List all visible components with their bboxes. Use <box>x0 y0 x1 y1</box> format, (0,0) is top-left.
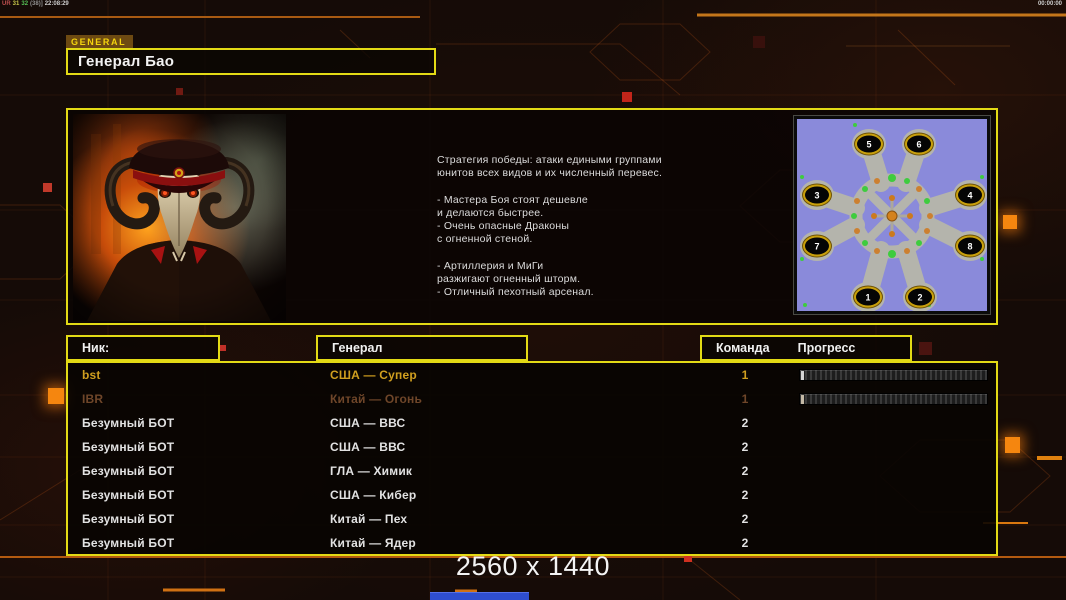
glow-square-decoration <box>1005 437 1020 453</box>
player-row: Безумный БОТ США — ВВС 2 <box>68 411 996 435</box>
general-name: Генерал Бао <box>78 53 174 70</box>
player-row: Безумный БОТ ГЛА — Химик 2 <box>68 459 996 483</box>
player-team: 2 <box>733 440 757 454</box>
minimap-preview: 1 2 3 4 5 6 7 8 <box>794 116 990 314</box>
general-column-header: Генерал <box>316 335 528 361</box>
player-nick: bst <box>82 368 101 382</box>
progress-tick <box>801 371 804 380</box>
minimap-position-1: 1 <box>854 287 882 308</box>
progress-header-label: Прогресс <box>798 341 856 355</box>
player-row: Безумный БОТ США — ВВС 2 <box>68 435 996 459</box>
general-title-box: Генерал Бао <box>66 48 436 75</box>
player-row: Безумный БОТ Китай — Пех 2 <box>68 507 996 531</box>
portrait-artwork <box>73 114 286 321</box>
player-team: 2 <box>733 512 757 526</box>
player-team: 2 <box>733 416 757 430</box>
glow-square-decoration <box>1003 215 1017 229</box>
player-nick: Безумный БОТ <box>82 512 174 526</box>
player-general: ГЛА — Химик <box>330 464 412 478</box>
progress-tick <box>801 395 804 404</box>
player-nick: IBR <box>82 392 103 406</box>
minimap-position-6: 6 <box>905 134 933 155</box>
player-nick: Безумный БОТ <box>82 536 174 550</box>
nick-column-header: Ник: <box>66 335 220 361</box>
glow-square-decoration <box>48 388 64 404</box>
resolution-label: 2560 x 1440 <box>0 551 1066 582</box>
stats-label: UR <box>2 1 11 7</box>
player-nick: Безумный БОТ <box>82 416 174 430</box>
player-general: Китай — Ядер <box>330 536 416 550</box>
player-row: bst США — Супер 1 <box>68 363 996 387</box>
player-team: 2 <box>733 536 757 550</box>
minimap-position-7: 7 <box>803 236 831 257</box>
loading-progress-bar <box>799 369 988 381</box>
loading-screen: UR3132(38)]22:08:29 00:00:00 GENERAL Ген… <box>0 0 1066 600</box>
player-team: 2 <box>733 488 757 502</box>
loading-progress-bar <box>799 393 988 405</box>
minimap-terrain <box>797 119 987 311</box>
general-bao-portrait <box>73 114 286 321</box>
player-nick: Безумный БОТ <box>82 440 174 454</box>
player-row: Безумный БОТ США — Кибер 2 <box>68 483 996 507</box>
player-general: США — Супер <box>330 368 417 382</box>
general-info-panel: Стратегия победы: атаки едиными группами… <box>66 108 998 325</box>
team-header-label: Команда <box>716 341 770 355</box>
bottom-blue-bar <box>430 592 529 600</box>
player-team: 2 <box>733 464 757 478</box>
player-general: США — ВВС <box>330 440 405 454</box>
player-general: США — Кибер <box>330 488 416 502</box>
player-team: 1 <box>733 368 757 382</box>
minimap-position-8: 8 <box>956 236 984 257</box>
player-table: bst США — Супер 1 IBR Китай — Огонь 1 Бе… <box>66 361 998 556</box>
player-team: 1 <box>733 392 757 406</box>
player-nick: Безумный БОТ <box>82 488 174 502</box>
minimap-position-2: 2 <box>906 287 934 308</box>
player-general: США — ВВС <box>330 416 405 430</box>
debug-stats-overlay: UR3132(38)]22:08:29 <box>2 1 71 8</box>
player-general: Китай — Огонь <box>330 392 422 406</box>
minimap-position-3: 3 <box>803 185 831 206</box>
game-timer: 00:00:00 <box>1038 1 1062 7</box>
team-progress-column-header: Команда Прогресс <box>700 335 912 361</box>
player-general: Китай — Пех <box>330 512 407 526</box>
strategy-description: Стратегия победы: атаки едиными группами… <box>437 154 767 299</box>
player-row: IBR Китай — Огонь 1 <box>68 387 996 411</box>
minimap-position-5: 5 <box>855 134 883 155</box>
player-nick: Безумный БОТ <box>82 464 174 478</box>
minimap-position-4: 4 <box>956 185 984 206</box>
general-tab-label: GENERAL <box>66 35 133 48</box>
